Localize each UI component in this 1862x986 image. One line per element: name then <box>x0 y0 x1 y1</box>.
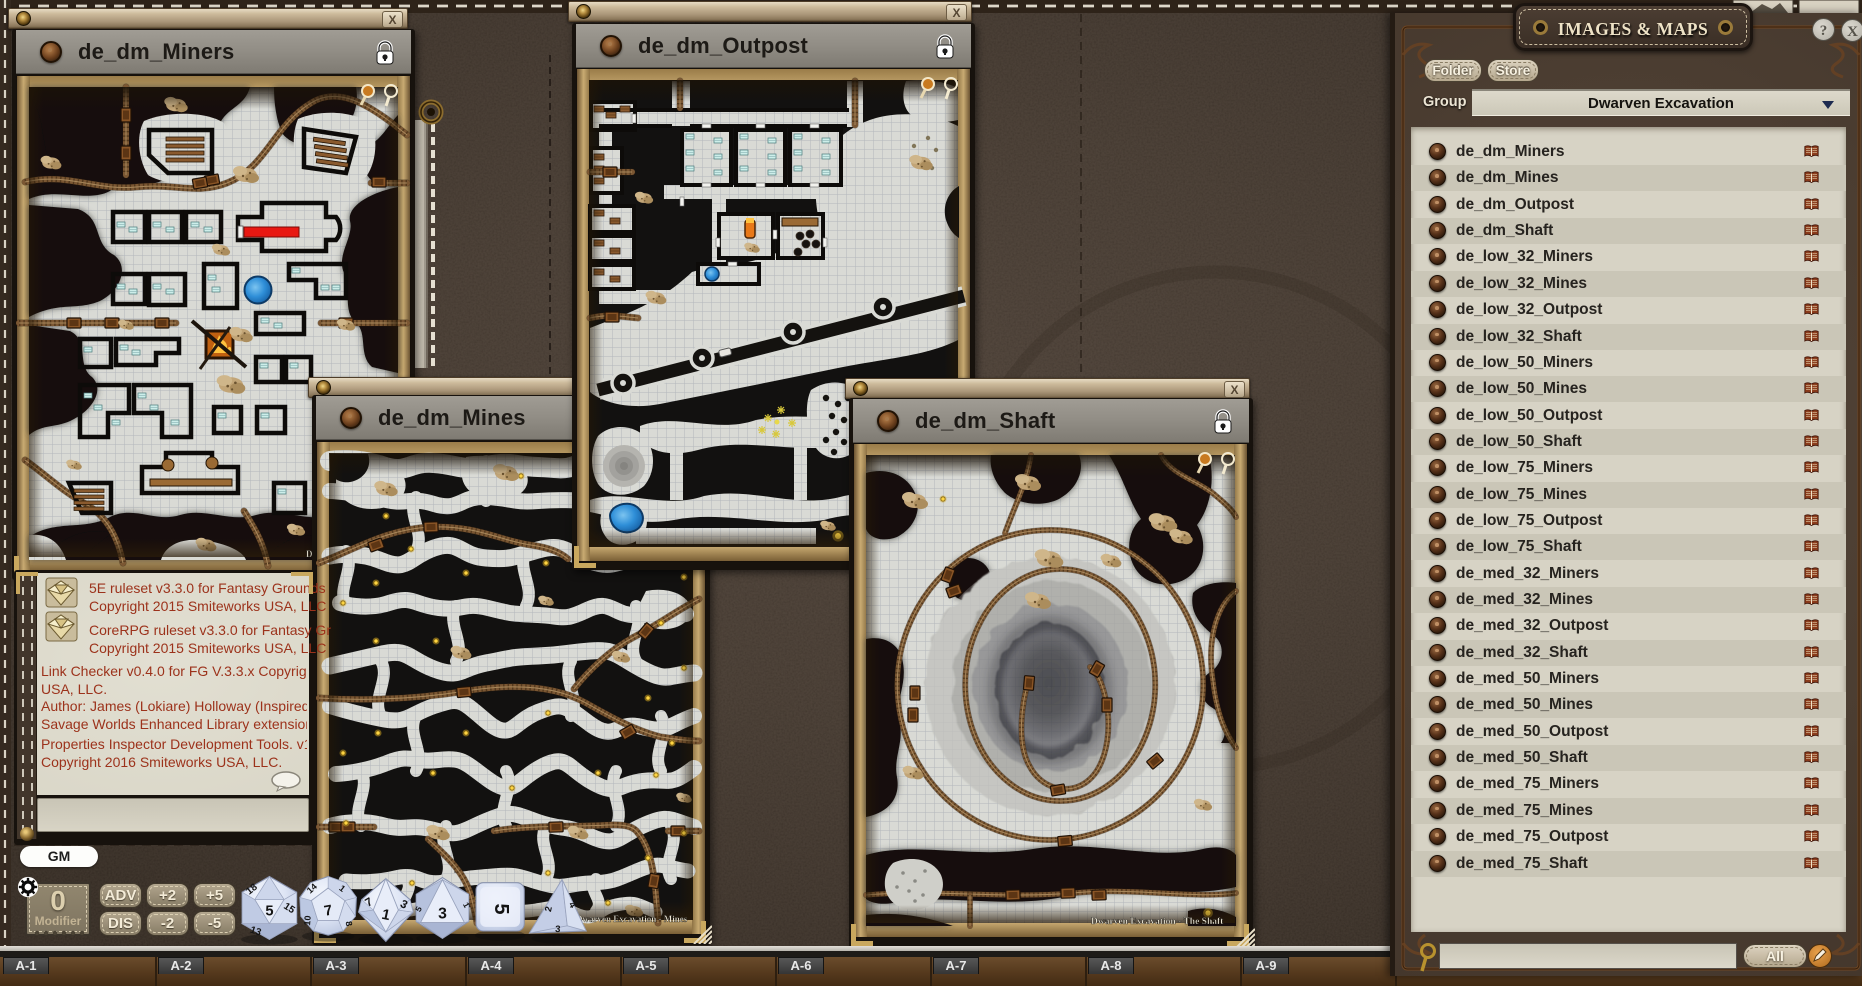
svg-text:+: + <box>1047 683 1052 692</box>
svg-text:3: 3 <box>438 905 447 922</box>
svg-text:3: 3 <box>555 923 561 934</box>
svg-text:5: 5 <box>490 903 512 914</box>
svg-text:10: 10 <box>302 915 313 926</box>
svg-text:8: 8 <box>344 920 355 927</box>
svg-text:Dwarven Excavation - The Shaft: Dwarven Excavation - The Shaft <box>1091 917 1224 927</box>
svg-text:5: 5 <box>265 903 273 919</box>
